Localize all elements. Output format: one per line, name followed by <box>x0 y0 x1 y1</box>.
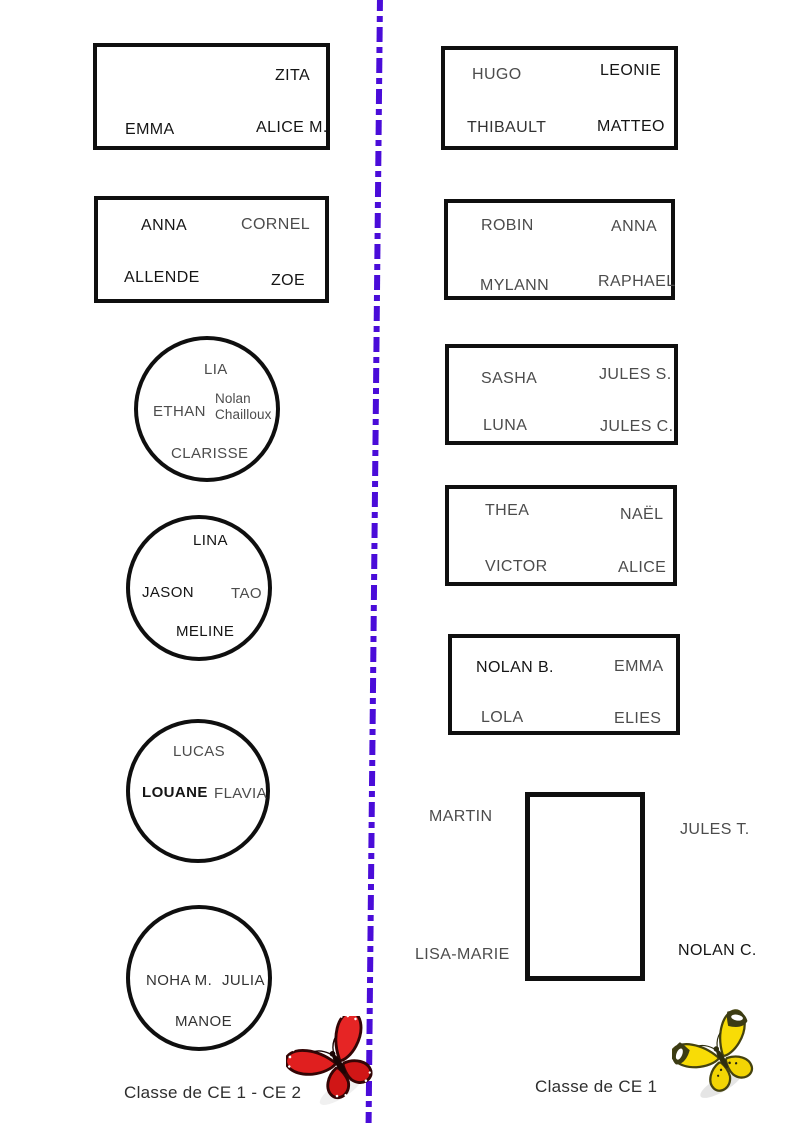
seat-mylann: MYLANN <box>480 277 549 295</box>
seat-matteo: MATTEO <box>597 118 665 136</box>
left-table-rect-2: ANNA CORNEL ALLENDE ZOE <box>94 196 329 303</box>
seat-manoe: MANOE <box>175 1014 232 1031</box>
page-divider-dashed-line <box>366 0 383 1123</box>
seat-lucas: LUCAS <box>173 744 225 761</box>
right-table-rect-2: ROBIN ANNA MYLANN RAPHAEL <box>444 199 675 300</box>
seat-julia: JULIA <box>222 973 265 990</box>
seat-sasha: SASHA <box>481 370 537 388</box>
left-class-label: Classe de CE 1 - CE 2 <box>124 1083 301 1103</box>
left-table-circle-2: LINA JASON TAO MELINE <box>126 515 272 661</box>
seat-alice-m: ALICE M. <box>256 119 328 137</box>
seat-thibault: THIBAULT <box>467 119 546 137</box>
seat-flavia: FLAVIA <box>214 786 267 803</box>
seat-clarisse: CLARISSE <box>171 446 248 463</box>
seat-jules-s: JULES S. <box>599 366 672 384</box>
seat-nolan-chailloux: Nolan Chailloux <box>215 391 271 423</box>
seat-lina: LINA <box>193 533 228 550</box>
seat-robin: ROBIN <box>481 217 534 235</box>
seat-martin: MARTIN <box>429 808 492 826</box>
seat-jason: JASON <box>142 585 194 602</box>
seat-allende: ALLENDE <box>124 269 200 287</box>
right-table-rect-6-empty <box>525 792 645 981</box>
seat-elies: ELIES <box>614 710 661 728</box>
seat-zoe: ZOE <box>271 272 305 290</box>
seat-jules-c: JULES C. <box>600 418 673 436</box>
seat-lisa-marie: LISA-MARIE <box>415 946 510 964</box>
red-butterfly-image <box>286 1016 392 1108</box>
seat-noha-m: NOHA M. <box>146 973 212 990</box>
seat-raphael: RAPHAEL <box>598 273 676 291</box>
seat-hugo: HUGO <box>472 66 522 84</box>
seat-nael: NAËL <box>620 506 663 524</box>
right-table-rect-5: NOLAN B. EMMA LOLA ELIES <box>448 634 680 735</box>
seat-anna-left: ANNA <box>141 217 187 235</box>
right-table-rect-1: HUGO LEONIE THIBAULT MATTEO <box>441 46 678 150</box>
seating-chart-page: ZITA EMMA ALICE M. ANNA CORNEL ALLENDE Z… <box>0 0 794 1123</box>
left-table-circle-1: LIA ETHAN Nolan Chailloux CLARISSE <box>134 336 280 482</box>
seat-nolan-b: NOLAN B. <box>476 659 554 677</box>
seat-lia: LIA <box>204 362 228 379</box>
seat-lola: LOLA <box>481 709 524 727</box>
seat-emma-right: EMMA <box>614 658 664 676</box>
seat-jules-t: JULES T. <box>680 821 750 839</box>
seat-louane: LOUANE <box>142 785 208 802</box>
seat-tao: TAO <box>231 586 262 603</box>
seat-nolan-c: NOLAN C. <box>678 942 757 960</box>
seat-meline: MELINE <box>176 624 234 641</box>
seat-cornel: CORNEL <box>241 216 310 234</box>
left-table-rect-1: ZITA EMMA ALICE M. <box>93 43 330 150</box>
right-class-label: Classe de CE 1 <box>535 1077 657 1097</box>
seat-alice: ALICE <box>618 559 666 577</box>
right-table-rect-3: SASHA JULES S. LUNA JULES C. <box>445 344 678 445</box>
right-table-rect-4: THEA NAËL VICTOR ALICE <box>445 485 677 586</box>
seat-anna-right: ANNA <box>611 218 657 236</box>
left-table-circle-3: LUCAS LOUANE FLAVIA <box>126 719 270 863</box>
left-table-circle-4: NOHA M. JULIA MANOE <box>126 905 272 1051</box>
seat-victor: VICTOR <box>485 558 548 576</box>
seat-leonie: LEONIE <box>600 62 661 80</box>
yellow-butterfly-image <box>672 1008 772 1106</box>
seat-ethan: ETHAN <box>153 404 206 421</box>
seat-thea: THEA <box>485 502 529 520</box>
seat-luna: LUNA <box>483 417 527 435</box>
seat-zita: ZITA <box>275 67 310 85</box>
seat-emma-left: EMMA <box>125 121 175 139</box>
